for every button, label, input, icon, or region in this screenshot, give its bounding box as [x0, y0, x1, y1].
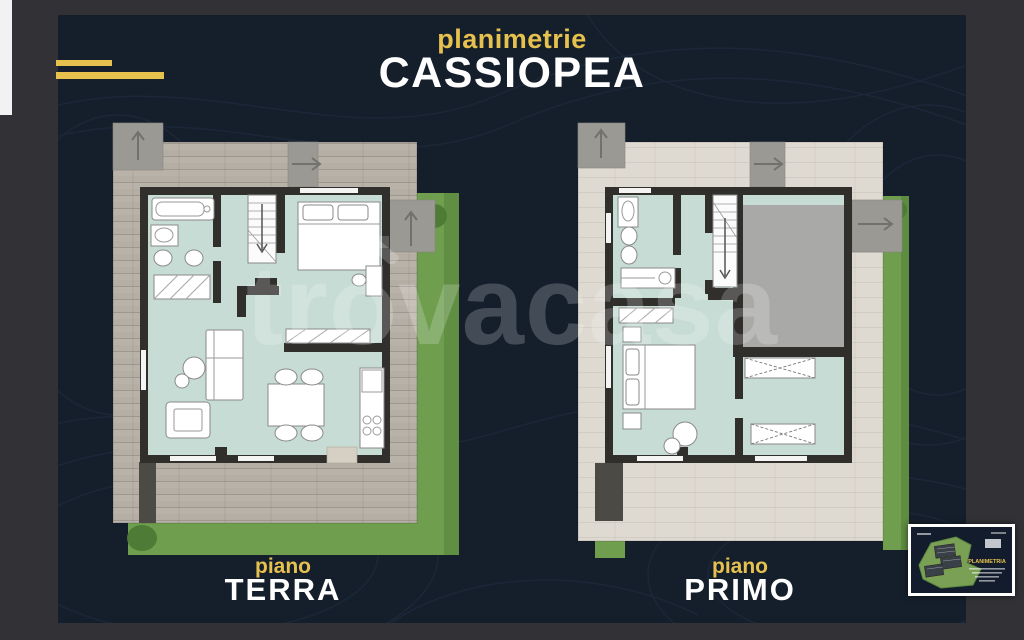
logo-badge — [985, 539, 1001, 548]
double-height-void — [743, 205, 844, 347]
bidet — [185, 250, 203, 266]
ground-floor-label: piano TERRA — [113, 556, 453, 605]
thumbnail-title: PLANIMETRIA — [968, 559, 1006, 565]
nightstand — [623, 327, 641, 342]
chair — [301, 425, 323, 441]
chair — [275, 425, 297, 441]
nightstand — [623, 413, 641, 429]
masterplan-thumbnail-image: PLANIMETRIA — [911, 527, 1012, 593]
floor-label-name: TERRA — [113, 574, 453, 605]
first-floor-label: piano PRIMO — [570, 556, 910, 605]
poster-header: planimetrie CASSIOPEA — [0, 26, 1024, 95]
chair — [275, 369, 297, 385]
sofa — [206, 330, 243, 400]
screenshot-root: planimetrie CASSIOPEA — [0, 0, 1024, 640]
armchair — [166, 402, 210, 438]
kitchen-counter — [360, 368, 384, 448]
floor-label-name: PRIMO — [570, 574, 910, 605]
entry-doorstep — [327, 447, 357, 463]
bush-icon — [127, 525, 157, 551]
toilet — [621, 227, 637, 245]
desk — [366, 266, 382, 296]
wardrobe — [286, 329, 370, 343]
first-floor-plan — [555, 118, 935, 560]
bathtub — [152, 198, 214, 220]
toilet — [154, 250, 172, 266]
dining-table — [268, 384, 324, 426]
chair — [301, 369, 323, 385]
bidet — [621, 246, 637, 264]
chair — [352, 274, 366, 286]
pouf — [664, 438, 680, 454]
staircase — [713, 195, 737, 287]
pouf — [175, 374, 189, 388]
poster-title: CASSIOPEA — [0, 52, 1024, 95]
ground-floor-plan — [110, 118, 475, 560]
staircase — [248, 195, 276, 263]
masterplan-thumbnail[interactable]: PLANIMETRIA — [908, 524, 1015, 596]
